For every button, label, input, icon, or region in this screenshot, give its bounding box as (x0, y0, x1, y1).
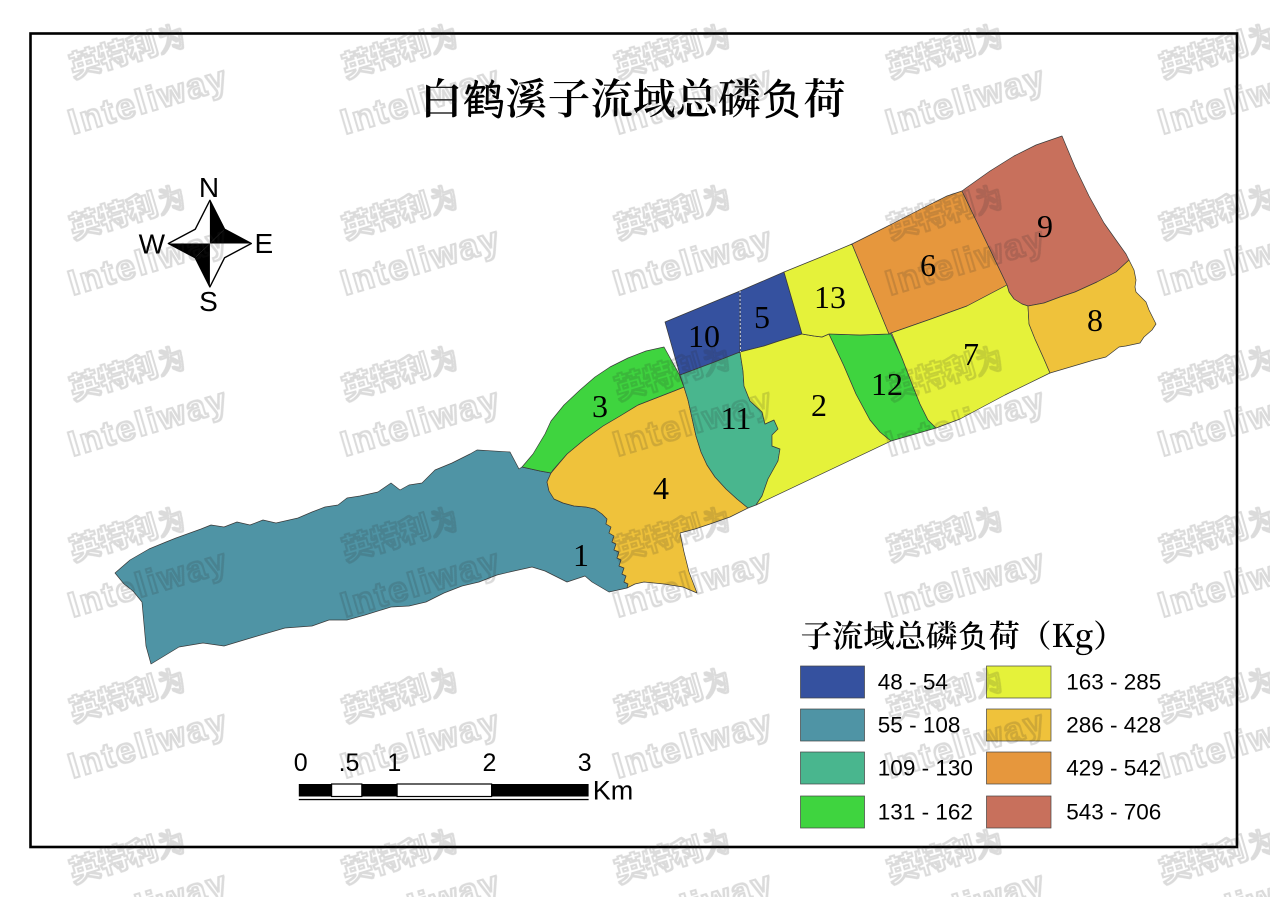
svg-text:0: 0 (294, 749, 308, 777)
svg-text:2: 2 (811, 387, 827, 423)
svg-text:3: 3 (578, 749, 592, 777)
svg-text:5: 5 (754, 299, 770, 335)
svg-text:543 - 706: 543 - 706 (1066, 800, 1161, 825)
svg-text:10: 10 (688, 318, 720, 354)
svg-text:S: S (199, 286, 218, 317)
svg-text:2: 2 (483, 749, 497, 777)
svg-text:286 - 428: 286 - 428 (1066, 713, 1161, 738)
svg-text:163 - 285: 163 - 285 (1066, 670, 1161, 695)
svg-text:E: E (254, 228, 273, 259)
svg-text:13: 13 (814, 279, 846, 315)
svg-text:N: N (199, 172, 219, 203)
svg-text:3: 3 (592, 388, 608, 424)
svg-text:4: 4 (653, 470, 669, 506)
svg-text:1: 1 (573, 537, 589, 573)
svg-text:131 - 162: 131 - 162 (878, 800, 973, 825)
svg-text:8: 8 (1087, 302, 1103, 338)
svg-text:429 - 542: 429 - 542 (1066, 756, 1161, 781)
